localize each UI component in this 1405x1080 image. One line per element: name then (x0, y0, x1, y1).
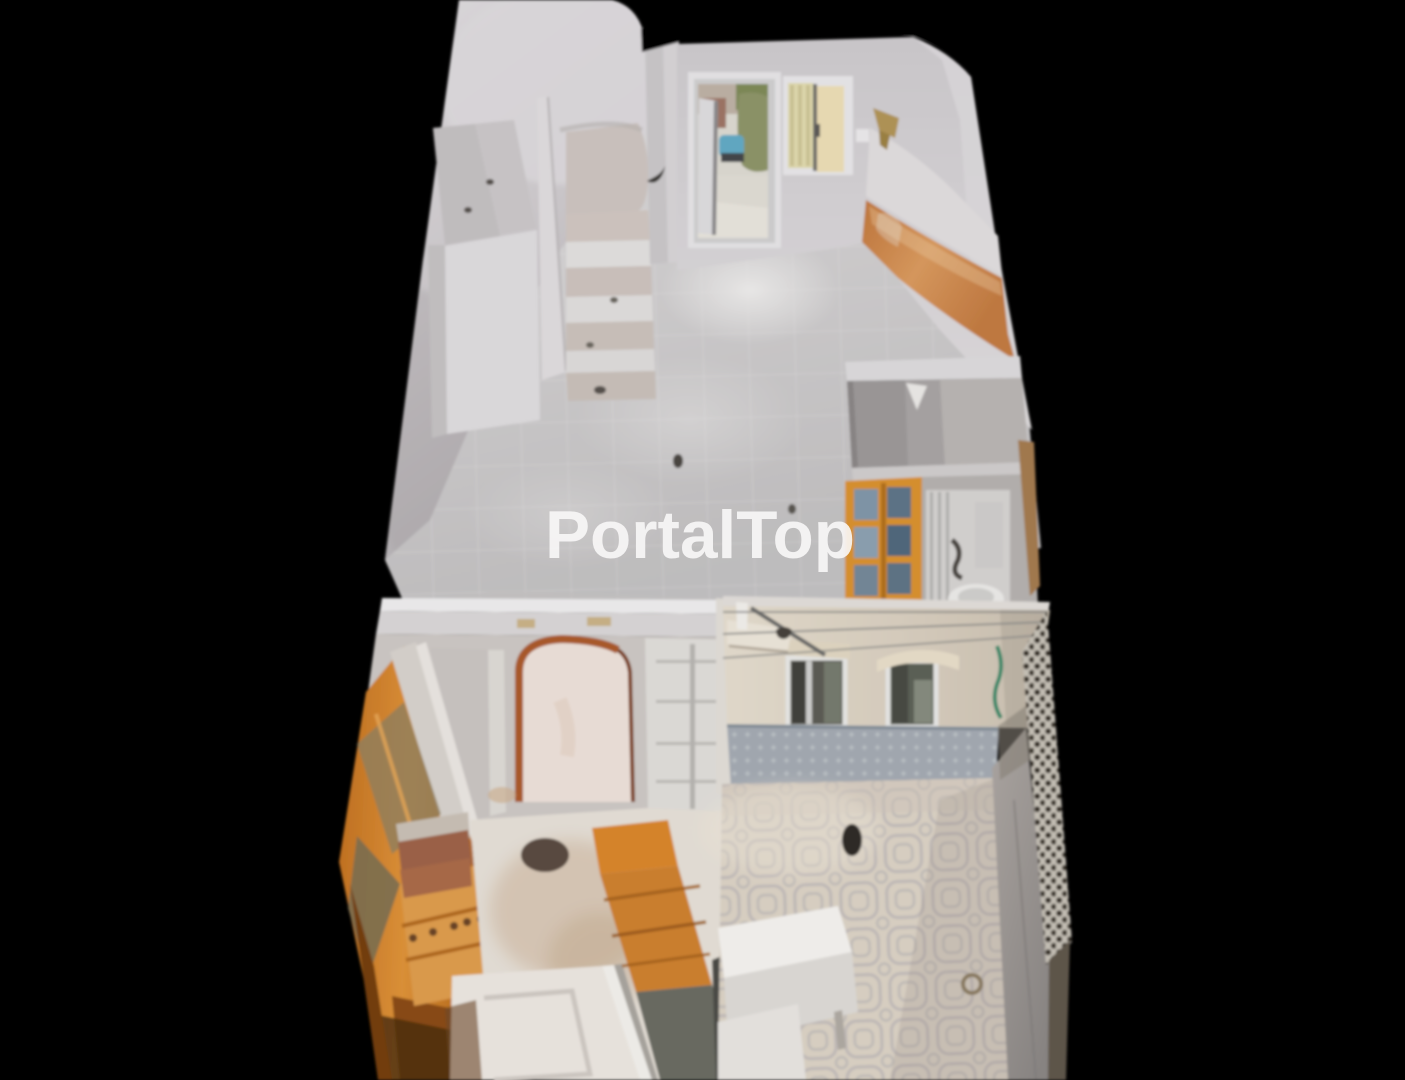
svg-text:PortalTop: PortalTop (545, 498, 855, 573)
